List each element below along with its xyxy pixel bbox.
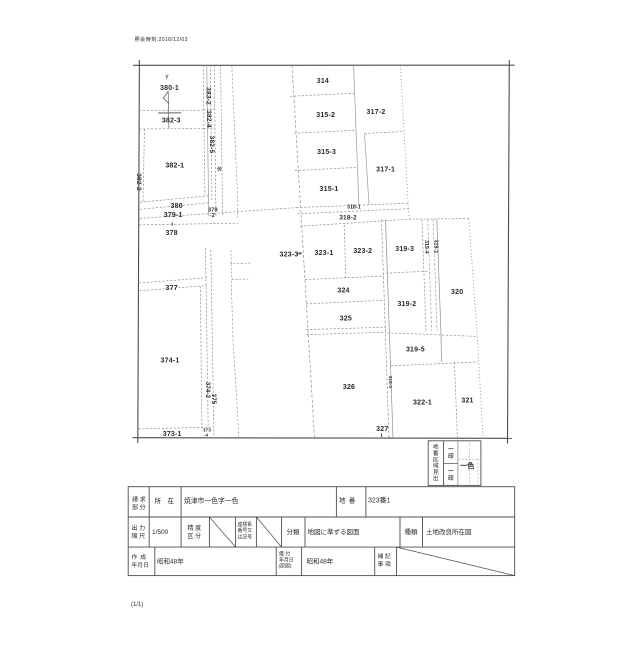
svg-text:印: 印: [448, 452, 454, 460]
svg-text:315-1: 315-1: [320, 186, 339, 193]
svg-text:319-4: 319-4: [423, 240, 429, 254]
svg-text:照会時刻:2018/12/03: 照会時刻:2018/12/03: [135, 35, 188, 43]
svg-text:323-2: 323-2: [353, 248, 372, 255]
svg-text:-4: -4: [204, 433, 209, 438]
svg-text:番号又: 番号又: [238, 527, 253, 534]
svg-text:昭和48年: 昭和48年: [157, 556, 184, 565]
svg-text:382-4: 382-4: [205, 110, 212, 128]
svg-text:383-2: 383-2: [204, 87, 211, 105]
svg-text:縮 尺: 縮 尺: [132, 532, 146, 540]
svg-text:一: 一: [448, 469, 454, 475]
svg-text:昭和48年: 昭和48年: [307, 556, 334, 565]
svg-text:地 番: 地 番: [339, 496, 356, 505]
svg-text:319-3: 319-3: [395, 246, 414, 253]
svg-text:作 成: 作 成: [132, 553, 147, 561]
svg-text:380-1: 380-1: [160, 85, 179, 92]
svg-text:水: 水: [216, 165, 223, 172]
svg-text:377: 377: [166, 285, 178, 292]
svg-text:精 度: 精 度: [188, 524, 202, 532]
svg-text:320: 320: [451, 289, 463, 296]
svg-text:315-2: 315-2: [316, 112, 335, 119]
svg-text:部 分: 部 分: [132, 504, 146, 512]
svg-text:321: 321: [461, 398, 473, 405]
svg-text:324: 324: [337, 288, 349, 295]
svg-text:323番1: 323番1: [368, 497, 391, 505]
svg-text:380: 380: [171, 203, 183, 210]
svg-text:は記号: は記号: [238, 534, 253, 541]
svg-text:年月日: 年月日: [279, 556, 294, 563]
svg-text:印: 印: [448, 474, 454, 482]
svg-text:焼津市一色字一色: 焼津市一色字一色: [184, 496, 239, 505]
svg-text:-2: -2: [210, 213, 215, 219]
svg-text:事 項: 事 項: [378, 560, 391, 568]
svg-text:分類: 分類: [287, 527, 301, 536]
svg-text:所 在: 所 在: [155, 496, 175, 505]
svg-text:318-3: 318-3: [388, 376, 393, 389]
svg-text:補 記: 補 記: [378, 552, 391, 560]
svg-text:323-1: 323-1: [315, 250, 334, 257]
svg-text:区 分: 区 分: [188, 532, 202, 540]
svg-text:322-1: 322-1: [413, 400, 432, 407]
svg-text:382-3: 382-3: [162, 117, 181, 124]
svg-text:請 求: 請 求: [132, 496, 146, 504]
svg-text:出 力: 出 力: [132, 524, 146, 532]
svg-text:314: 314: [317, 78, 329, 85]
svg-text:地図に準ずる図面: 地図に準ずる図面: [308, 527, 361, 536]
svg-text:319-1: 319-1: [433, 240, 439, 254]
svg-text:326: 326: [343, 384, 355, 391]
svg-text:319-2: 319-2: [397, 301, 416, 308]
svg-text:種類: 種類: [405, 527, 419, 536]
svg-text:土地改良所在図: 土地改良所在図: [426, 527, 472, 536]
svg-text:317-1: 317-1: [376, 167, 395, 174]
svg-text:373-1: 373-1: [163, 431, 182, 438]
svg-text:一: 一: [448, 447, 454, 453]
svg-text:318-2: 318-2: [339, 215, 357, 222]
svg-text:317-2: 317-2: [367, 109, 386, 116]
svg-text:318-1: 318-1: [347, 205, 361, 211]
svg-text:374-1: 374-1: [161, 358, 180, 365]
svg-text:382-5: 382-5: [208, 136, 215, 154]
svg-text:375: 375: [210, 394, 216, 405]
svg-text:座標系: 座標系: [238, 521, 253, 528]
svg-text:備 付: 備 付: [279, 550, 290, 557]
svg-text:(1/1): (1/1): [131, 602, 143, 608]
svg-text:382-1: 382-1: [165, 162, 184, 169]
svg-text:地番区域見出: 地番区域見出: [433, 443, 439, 483]
svg-text:319-5: 319-5: [406, 347, 425, 354]
svg-text:374-2: 374-2: [204, 382, 210, 399]
svg-text:325: 325: [340, 316, 352, 323]
svg-text:年月日: 年月日: [132, 561, 149, 569]
svg-text:382-2: 382-2: [135, 173, 142, 191]
svg-text:1/500: 1/500: [152, 529, 169, 536]
svg-text:378: 378: [165, 230, 177, 237]
svg-text:323-3: 323-3: [280, 252, 299, 259]
svg-text:327: 327: [376, 426, 388, 433]
svg-text:一色: 一色: [460, 461, 474, 470]
svg-text:379-1: 379-1: [164, 212, 183, 219]
svg-text:(原図): (原図): [279, 564, 292, 570]
svg-text:315-3: 315-3: [317, 149, 336, 156]
